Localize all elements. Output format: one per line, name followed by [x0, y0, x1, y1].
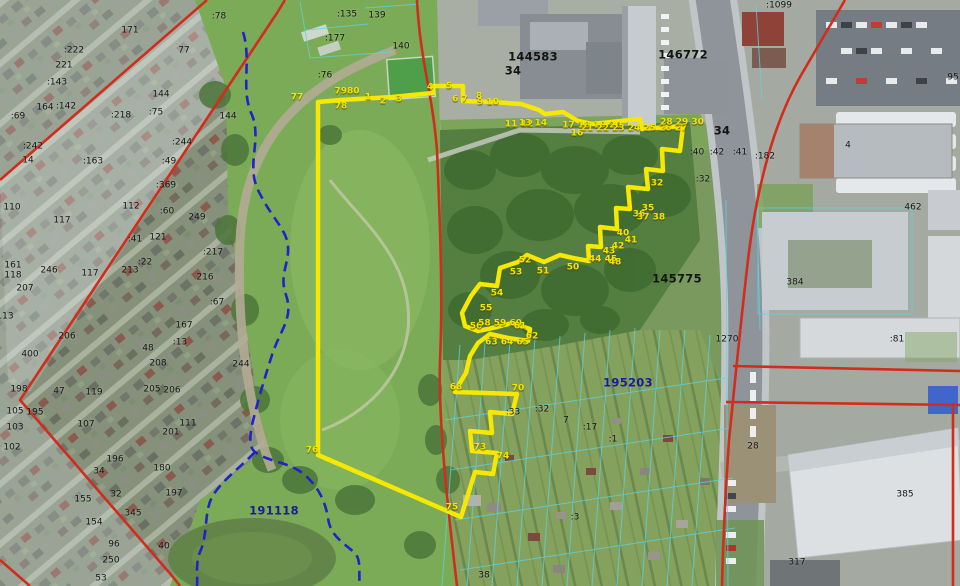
satellite-map-viewport[interactable]: :7817177:222221:143144164:142:218:75144:…	[0, 0, 960, 586]
map-canvas	[0, 0, 960, 586]
allotment-gardens	[443, 330, 735, 586]
